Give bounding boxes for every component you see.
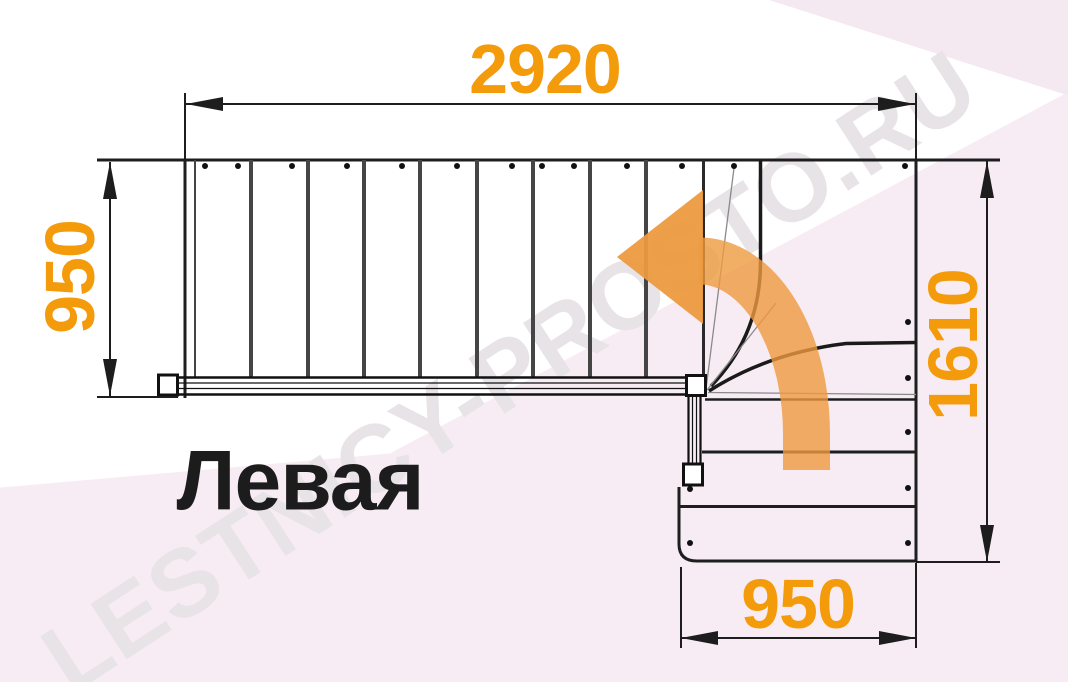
dimension-top-label: 2920: [469, 29, 621, 109]
handrail-top: [178, 378, 686, 395]
plan-variant-label: Левая: [177, 433, 424, 530]
dimension-bottom-label: 950: [741, 564, 855, 644]
handrail-side: [689, 396, 701, 464]
dimension-left-label: 950: [30, 220, 110, 334]
dimension-right-label: 1610: [913, 269, 993, 421]
staircase-plan-page: LESTNICY-PROSTO.RU: [0, 0, 1068, 682]
upper-flight-treads: [251, 160, 646, 377]
